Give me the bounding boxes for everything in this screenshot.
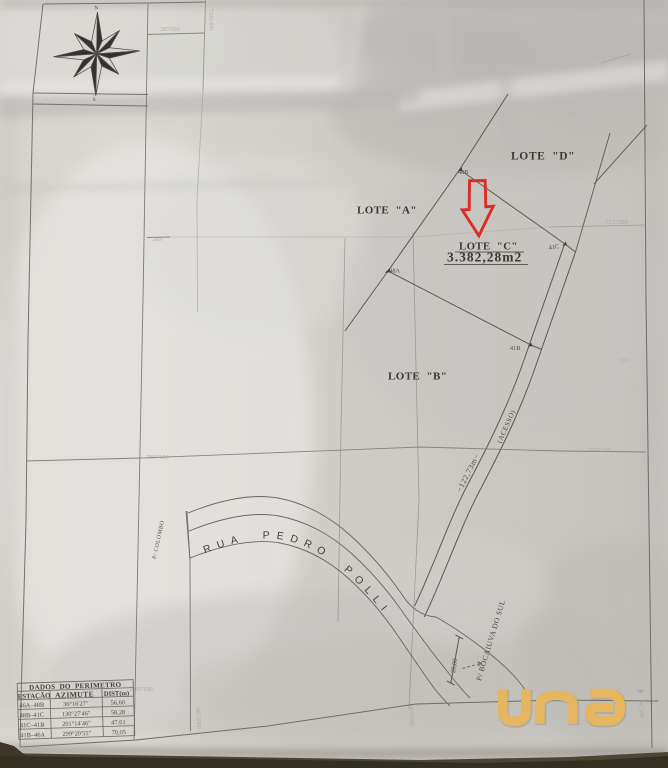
svg-text:130°27'46": 130°27'46" (62, 710, 91, 718)
svg-text:201°14'46": 201°14'46" (62, 720, 91, 728)
svg-text:7097100: 7097100 (146, 454, 169, 461)
svg-text:41B–46A: 41B–46A (20, 732, 45, 740)
svg-text:48B–41C: 48B–41C (20, 712, 45, 720)
svg-text:N: N (94, 6, 98, 12)
svg-text:647300: 647300 (637, 700, 644, 718)
svg-text:LOTE "A": LOTE "A" (357, 205, 417, 217)
svg-text:7097200: 7097200 (588, 447, 611, 454)
svg-text:ESTAÇÃO: ESTAÇÃO (18, 692, 52, 701)
svg-text:2897: 2897 (152, 237, 164, 243)
svg-text:58,28: 58,28 (111, 709, 126, 716)
svg-text:AZIMUTE: AZIMUTE (55, 690, 94, 700)
svg-text:3.382,28m2: 3.382,28m2 (447, 250, 522, 265)
svg-text:56,60: 56,60 (110, 699, 125, 706)
svg-text:LOTE "D": LOTE "D" (511, 151, 575, 163)
svg-text:41C: 41C (548, 243, 559, 251)
svg-text:299°20'55": 299°20'55" (62, 730, 91, 738)
svg-text:41B: 41B (510, 345, 520, 352)
svg-text:S: S (93, 97, 96, 103)
svg-text:7207: 7207 (618, 358, 630, 364)
svg-text:DIST(m): DIST(m) (104, 690, 129, 698)
svg-text:7241300: 7241300 (207, 9, 214, 30)
svg-text:47,61: 47,61 (111, 719, 126, 726)
svg-text:287050: 287050 (160, 26, 180, 33)
svg-text:LOTE "B": LOTE "B" (388, 371, 447, 383)
svg-text:TM: TM (637, 689, 644, 694)
svg-text:41C–41B: 41C–41B (20, 722, 45, 730)
svg-text:7237200: 7237200 (605, 219, 628, 226)
svg-text:46A–48B: 46A–48B (19, 702, 44, 710)
svg-text:48A: 48A (390, 269, 401, 275)
svg-text:70,05: 70,05 (111, 729, 126, 736)
svg-text:36°16'27": 36°16'27" (63, 700, 89, 708)
